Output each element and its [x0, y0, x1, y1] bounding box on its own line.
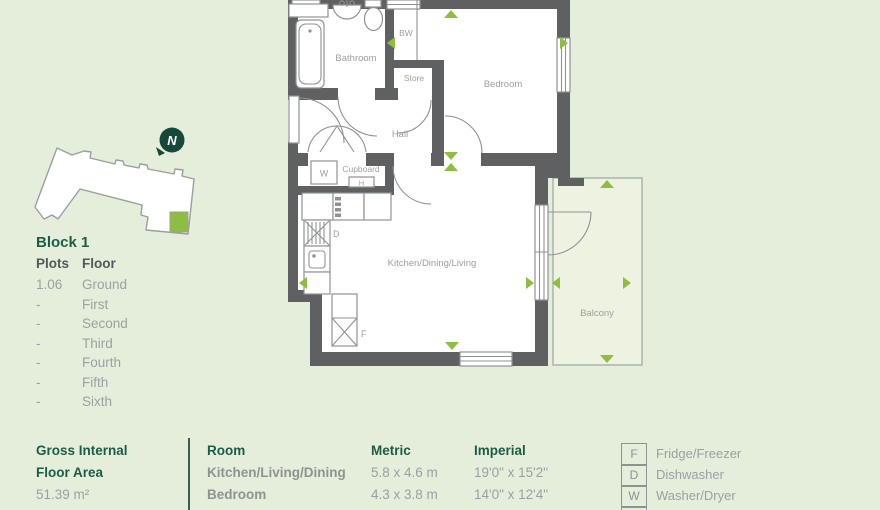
legend-key-partial [621, 506, 647, 510]
kitchen-sink-icon [304, 246, 330, 272]
plot-cell: 1.06 [36, 275, 82, 295]
plots-floor-header: PlotsFloor [36, 253, 196, 275]
plot-row: -Fourth [36, 353, 196, 373]
gross-area-column: Gross Internal Floor Area 51.39 m² [36, 440, 128, 506]
floor-header: Floor [82, 253, 116, 275]
room-name: Bedroom [207, 484, 346, 506]
hall-label: Hall [392, 129, 408, 140]
plot-row: -Third [36, 334, 196, 354]
floor-cell: Second [82, 314, 128, 334]
balcony-label: Balcony [580, 308, 614, 319]
plot-row: -Second [36, 314, 196, 334]
cupboard-label: Cupboard [342, 164, 380, 174]
block-info: Block 1 PlotsFloor 1.06Ground -First -Se… [36, 234, 196, 412]
plot-cell: - [36, 353, 82, 373]
legend-label-fridge: Fridge/Freezer [656, 443, 741, 465]
floor-cell: First [82, 295, 108, 315]
floor-plan: Bathroom BW Store Bedroom Hall Cupboard … [280, 0, 660, 372]
bw-label: BW [399, 28, 413, 38]
plot-row: -First [36, 295, 196, 315]
room-column: Room Kitchen/Living/Dining Bedroom [207, 440, 346, 506]
gross-area-value: 51.39 m² [36, 484, 128, 506]
metric-column: Metric 5.8 x 4.6 m 4.3 x 3.8 m [371, 440, 438, 506]
imperial-value: 19'0" x 15'2" [474, 462, 548, 484]
store-label: Store [404, 73, 425, 83]
kitchen-label: Kitchen/Dining/Living [388, 258, 477, 269]
imperial-value: 14'0" x 12'4" [474, 484, 548, 506]
floor-cell: Third [82, 334, 113, 354]
floor-cell: Fourth [82, 353, 121, 373]
plot-row: -Sixth [36, 392, 196, 412]
plot-cell: - [36, 314, 82, 334]
metric-header: Metric [371, 440, 438, 462]
imperial-column: Imperial 19'0" x 15'2" 14'0" x 12'4" [474, 440, 548, 506]
fridge-key: F [361, 329, 367, 339]
dishwasher-icon [304, 220, 330, 246]
plot-cell: - [36, 373, 82, 393]
floor-cell: Ground [82, 275, 127, 295]
legend-label-washer: Washer/Dryer [656, 485, 736, 507]
legend-key-washer: W [621, 485, 647, 508]
block-title: Block 1 [36, 234, 196, 251]
appliance-legend: F Fridge/Freezer D Dishwasher W Washer/D… [621, 443, 841, 510]
heater-key: H [359, 179, 364, 188]
svg-text:N: N [167, 133, 177, 148]
plot-cell: - [36, 392, 82, 412]
window [387, 0, 420, 9]
room-header: Room [207, 440, 346, 462]
dishwasher-key: D [333, 229, 340, 239]
bathroom-counter [289, 4, 328, 17]
plots-header: Plots [36, 253, 82, 275]
bedroom-label: Bedroom [484, 79, 523, 90]
floor-cell: Fifth [82, 373, 108, 393]
block-locator-map: N [28, 120, 200, 238]
floor-cell: Sixth [82, 392, 112, 412]
legend-key-dishwasher: D [621, 464, 647, 487]
toilet-icon [365, 0, 383, 31]
imperial-header: Imperial [474, 440, 548, 462]
balcony-area [553, 178, 642, 365]
bathroom-label: Bathroom [335, 53, 376, 64]
room-name: Kitchen/Living/Dining [207, 462, 346, 484]
fridge-icon [332, 294, 357, 346]
floorplan-page: N Block 1 PlotsFloor 1.06Ground -First -… [0, 0, 880, 510]
plot-row: -Fifth [36, 373, 196, 393]
metric-value: 5.8 x 4.6 m [371, 462, 438, 484]
metric-value: 4.3 x 3.8 m [371, 484, 438, 506]
north-icon: N [156, 128, 185, 157]
kitchen-window [460, 352, 512, 366]
gross-internal-label: Gross Internal [36, 440, 128, 462]
legend-label-dishwasher: Dishwasher [656, 464, 724, 486]
footer-divider [188, 438, 190, 510]
floor-area-label: Floor Area [36, 462, 128, 484]
balcony-glazed-door [535, 205, 548, 300]
plot-cell: - [36, 334, 82, 354]
plot-cell: - [36, 295, 82, 315]
legend-key-fridge: F [621, 443, 647, 466]
bathtub-icon [296, 20, 324, 88]
highlighted-plot [170, 212, 188, 232]
plot-row: 1.06Ground [36, 275, 196, 295]
washer-key: W [320, 169, 329, 179]
